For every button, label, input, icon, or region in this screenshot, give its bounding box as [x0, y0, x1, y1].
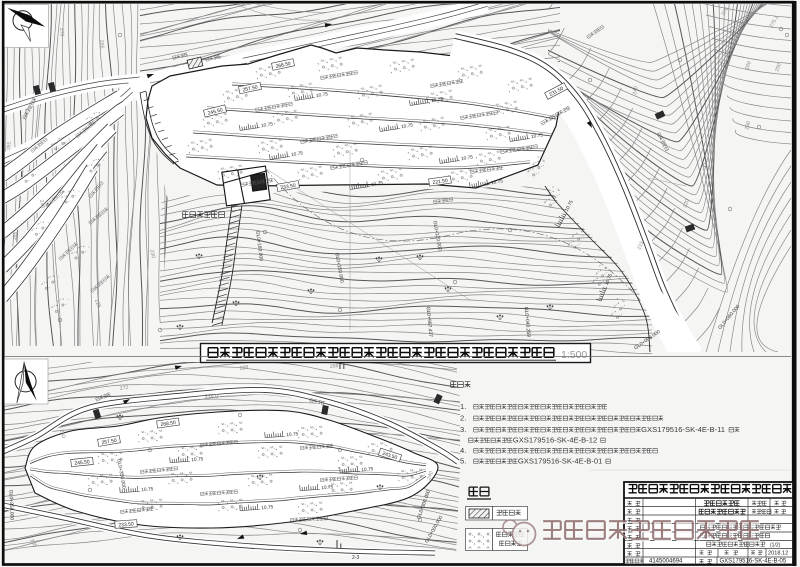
svg-text:276.0: 276.0	[205, 394, 218, 400]
svg-text:265: 265	[98, 40, 105, 49]
svg-text:2-3: 2-3	[352, 555, 359, 561]
svg-text:2.: 2.	[460, 413, 466, 422]
svg-text:GXS179516-SK-4E-B-11: GXS179516-SK-4E-B-11	[641, 425, 725, 434]
svg-text:2018.12: 2018.12	[768, 551, 788, 557]
svg-text:10.75: 10.75	[141, 486, 154, 493]
svg-text:266: 266	[330, 363, 339, 370]
svg-text:3.: 3.	[460, 425, 466, 434]
svg-text:4.: 4.	[460, 446, 466, 455]
svg-text:GXS179516-SK-4E-B-12: GXS179516-SK-4E-B-12	[513, 435, 597, 444]
svg-text:GXS179516-SK-4E-B-01: GXS179516-SK-4E-B-01	[518, 456, 602, 465]
svg-text:270: 270	[58, 28, 65, 37]
svg-text:GXS179516-SK-4E-B-05: GXS179516-SK-4E-B-05	[720, 559, 787, 565]
svg-text:1.: 1.	[460, 402, 466, 411]
svg-text:5.: 5.	[460, 456, 466, 465]
svg-text:10.75: 10.75	[261, 504, 274, 511]
svg-text:(1/2): (1/2)	[770, 543, 781, 549]
svg-text:255: 255	[12, 231, 19, 240]
svg-text:233.50: 233.50	[118, 521, 134, 528]
svg-text:272: 272	[119, 385, 129, 392]
svg-text:10.75: 10.75	[286, 431, 299, 438]
svg-text:GL0+358.000: GL0+358.000	[7, 490, 14, 521]
svg-text:265: 265	[6, 141, 13, 150]
svg-text:10.75: 10.75	[191, 456, 204, 463]
svg-text:10.75: 10.75	[361, 466, 374, 473]
svg-text:4145004694: 4145004694	[649, 558, 683, 564]
svg-text:1:500: 1:500	[561, 349, 587, 361]
svg-text:10.75: 10.75	[321, 484, 334, 491]
